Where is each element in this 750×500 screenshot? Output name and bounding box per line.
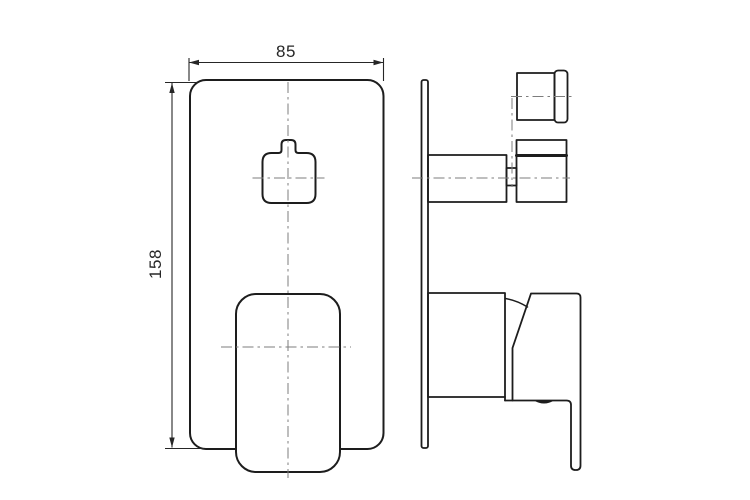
arrow-up-icon [169,83,174,93]
lever-base-arc [506,299,528,308]
height-dimension-label: 158 [146,249,165,279]
arrow-right-icon [374,60,384,65]
wall-plate-side [422,80,429,448]
side-view [412,71,581,471]
diverter-knob-side [517,140,567,202]
set-screw-recess [534,401,554,404]
mixer-body-side [428,293,505,397]
arrow-left-icon [189,60,199,65]
width-dimension-label: 85 [276,42,296,61]
technical-drawing-page: 85 158 [0,0,750,500]
front-view: 85 158 [146,42,384,478]
front-object-lines [190,80,384,472]
mixer-lever-side [513,294,581,471]
mixer-valve-technical-drawing: 85 158 [0,0,750,500]
diverter-key-hole [263,140,316,203]
side-center-lines [412,97,572,188]
arrow-down-icon [169,438,174,448]
side-object-lines [422,71,581,471]
dimension-texts: 85 158 [146,42,296,279]
